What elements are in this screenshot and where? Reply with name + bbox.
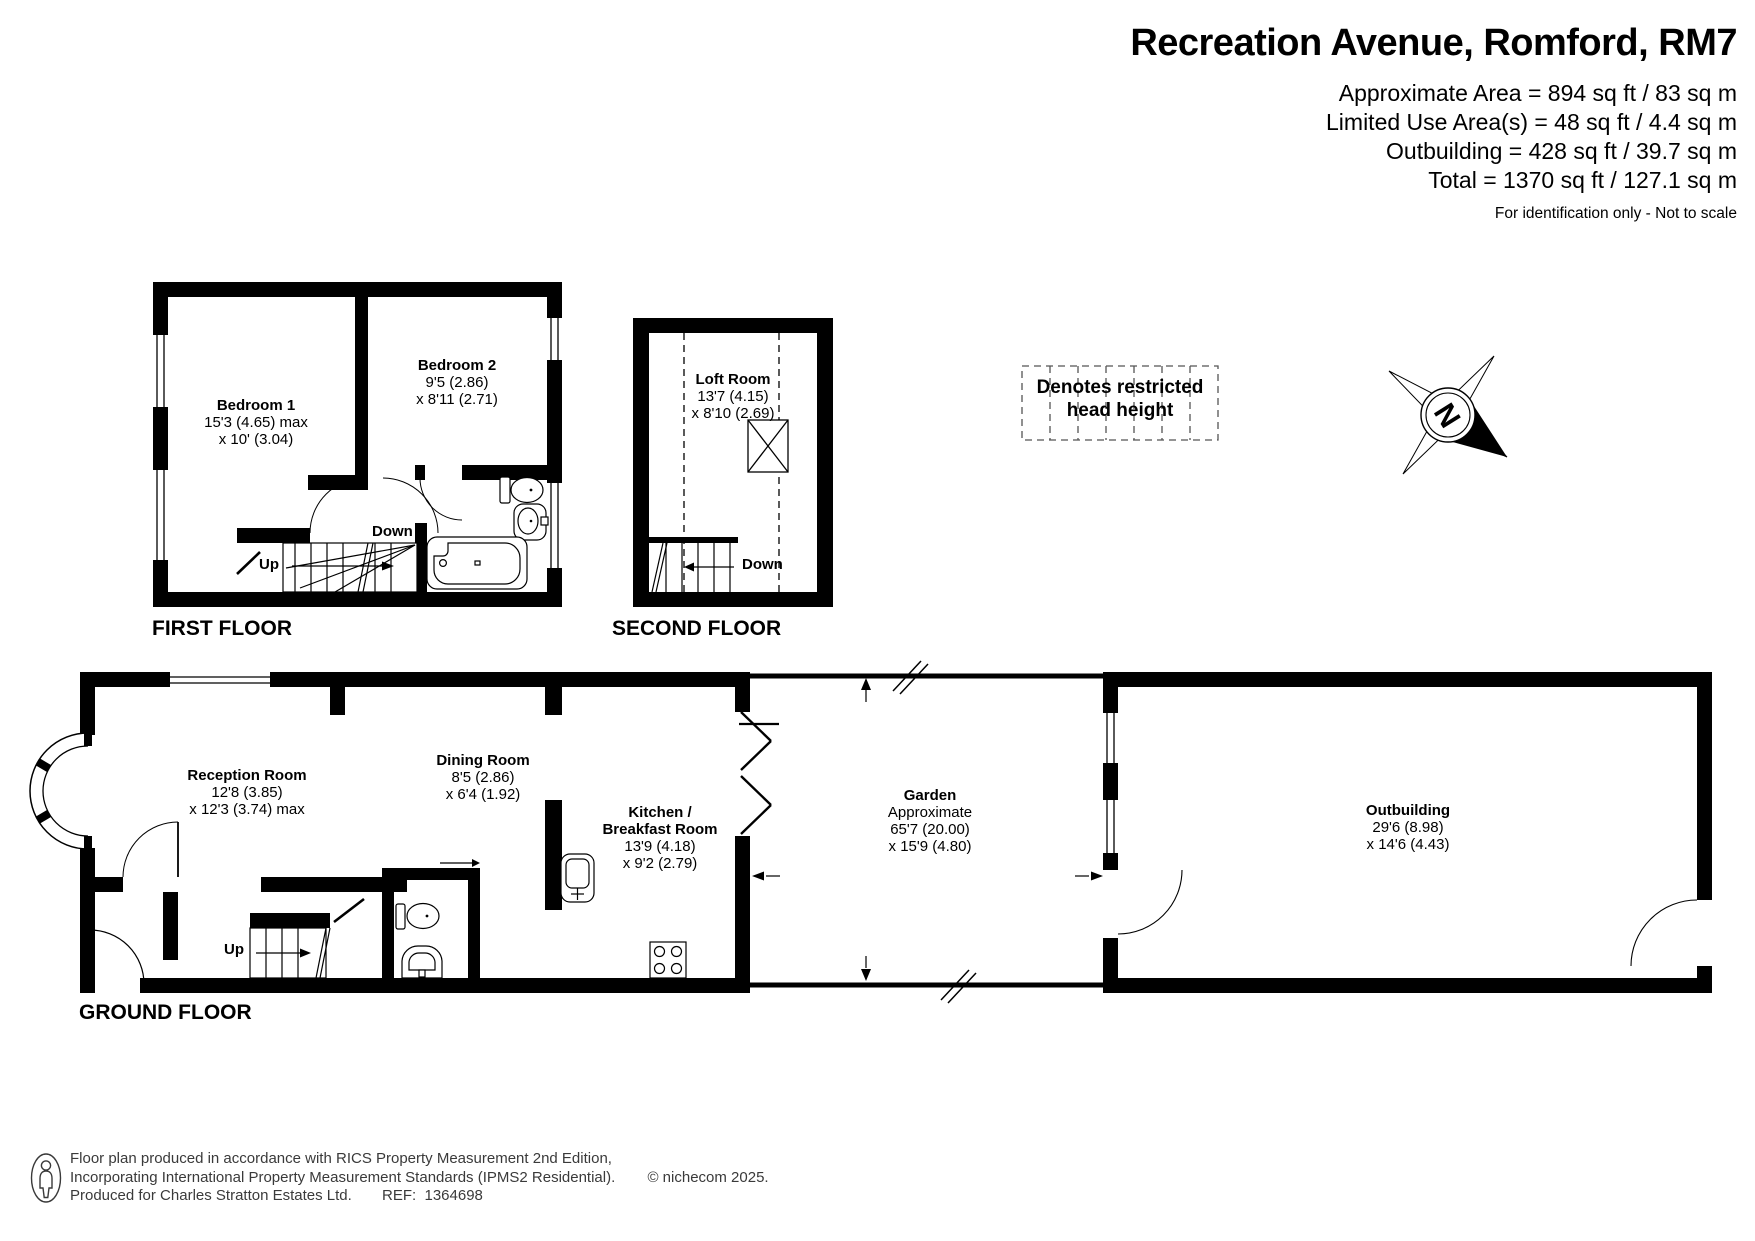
room-name: Loft Room <box>692 371 775 388</box>
footer: Floor plan produced in accordance with R… <box>70 1150 769 1206</box>
stairs-down-label-first-floor: Down <box>372 523 413 540</box>
room-dim: 65'7 (20.00) <box>888 821 972 838</box>
ground-floor-top-window <box>170 672 270 687</box>
footer-line1: Floor plan produced in accordance with R… <box>70 1150 769 1169</box>
toilet-icon <box>500 477 543 503</box>
person-scale-icon <box>28 1152 64 1204</box>
bifold-door-icon <box>739 712 779 834</box>
bath-icon <box>427 537 527 589</box>
front-door-icon <box>90 930 144 984</box>
footer-line3: Produced for Charles Stratton Estates Lt… <box>70 1187 352 1204</box>
room-name: Reception Room <box>187 767 306 784</box>
north-compass-icon: N <box>1389 356 1507 474</box>
outbuilding-doors <box>1118 870 1697 966</box>
stairs-up-label-first-floor: Up <box>259 556 279 573</box>
room-qualifier: Approximate <box>888 804 972 821</box>
room-dim: x 9'2 (2.79) <box>602 855 717 872</box>
skylight-icon <box>748 420 788 472</box>
second-floor-stairs <box>652 543 734 592</box>
room-dim: x 8'10 (2.69) <box>692 405 775 422</box>
room-name: Bedroom 1 <box>204 397 308 414</box>
identification-note: For identification only - Not to scale <box>1130 205 1737 223</box>
stairs-up-label-ground-floor: Up <box>224 941 244 958</box>
room-dim: x 12'3 (3.74) max <box>187 801 306 818</box>
room-label-bedroom1: Bedroom 1 15'3 (4.65) max x 10' (3.04) <box>204 397 308 448</box>
room-name: Dining Room <box>436 752 529 769</box>
second-floor-walls <box>633 318 833 607</box>
stove-icon <box>650 942 686 978</box>
area-line-limited-use: Limited Use Area(s) = 48 sq ft / 4.4 sq … <box>1130 108 1737 137</box>
room-dim: x 6'4 (1.92) <box>436 786 529 803</box>
room-dim: 9'5 (2.86) <box>416 374 498 391</box>
wc-toilet-icon <box>396 904 439 930</box>
room-dim: 15'3 (4.65) max <box>204 414 308 431</box>
ground-floor-label: GROUND FLOOR <box>79 1001 252 1025</box>
second-floor-label: SECOND FLOOR <box>612 617 781 641</box>
legend-line: head height <box>1022 399 1218 422</box>
wc-basin-icon <box>402 946 442 978</box>
second-floor-plan <box>633 318 833 607</box>
room-label-garden: Garden Approximate 65'7 (20.00) x 15'9 (… <box>888 787 972 855</box>
reception-door-icon <box>123 822 178 877</box>
restricted-height-legend: Denotes restricted head height <box>1022 376 1218 422</box>
room-dim: x 8'11 (2.71) <box>416 391 498 408</box>
ground-floor-plan <box>30 661 1712 1003</box>
room-dim: 13'7 (4.15) <box>692 388 775 405</box>
area-line-outbuilding: Outbuilding = 428 sq ft / 39.7 sq m <box>1130 137 1737 166</box>
floorplan-page: N <box>0 0 1755 1241</box>
room-label-reception: Reception Room 12'8 (3.85) x 12'3 (3.74)… <box>187 767 306 818</box>
room-dim: 29'6 (8.98) <box>1366 819 1450 836</box>
room-dim: x 10' (3.04) <box>204 431 308 448</box>
dining-dimension-arrow <box>440 859 480 867</box>
footer-copyright: © nichecom 2025. <box>647 1169 768 1186</box>
room-label-bedroom2: Bedroom 2 9'5 (2.86) x 8'11 (2.71) <box>416 357 498 408</box>
room-name: Kitchen / <box>602 804 717 821</box>
basin-icon <box>514 504 548 540</box>
room-name: Breakfast Room <box>602 821 717 838</box>
area-line-total: Total = 1370 sq ft / 127.1 sq m <box>1130 166 1737 195</box>
room-dim: x 15'9 (4.80) <box>888 838 972 855</box>
kitchen-sink-icon <box>561 854 594 902</box>
room-dim: 13'9 (4.18) <box>602 838 717 855</box>
room-label-loft: Loft Room 13'7 (4.15) x 8'10 (2.69) <box>692 371 775 422</box>
room-label-outbuilding: Outbuilding 29'6 (8.98) x 14'6 (4.43) <box>1366 802 1450 853</box>
page-title: Recreation Avenue, Romford, RM7 <box>1130 22 1737 65</box>
area-line-approximate: Approximate Area = 894 sq ft / 83 sq m <box>1130 79 1737 108</box>
room-dim: x 14'6 (4.43) <box>1366 836 1450 853</box>
room-name: Bedroom 2 <box>416 357 498 374</box>
stairs-down-label-second-floor: Down <box>742 556 783 573</box>
footer-line2: Incorporating International Property Mea… <box>70 1169 615 1186</box>
room-label-kitchen: Kitchen / Breakfast Room 13'9 (4.18) x 9… <box>602 804 717 872</box>
first-floor-label: FIRST FLOOR <box>152 617 292 641</box>
legend-line: Denotes restricted <box>1022 376 1218 399</box>
footer-ref: REF: 1364698 <box>382 1187 483 1204</box>
area-summary: Approximate Area = 894 sq ft / 83 sq m L… <box>1130 79 1737 195</box>
room-name: Garden <box>888 787 972 804</box>
room-dim: 8'5 (2.86) <box>436 769 529 786</box>
ground-floor-stairs <box>250 928 330 978</box>
header: Recreation Avenue, Romford, RM7 Approxim… <box>1130 22 1737 223</box>
hall-door-ajar-icon <box>334 899 364 922</box>
room-name: Outbuilding <box>1366 802 1450 819</box>
room-dim: 12'8 (3.85) <box>187 784 306 801</box>
room-label-dining: Dining Room 8'5 (2.86) x 6'4 (1.92) <box>436 752 529 803</box>
bay-window-icon <box>30 733 88 849</box>
